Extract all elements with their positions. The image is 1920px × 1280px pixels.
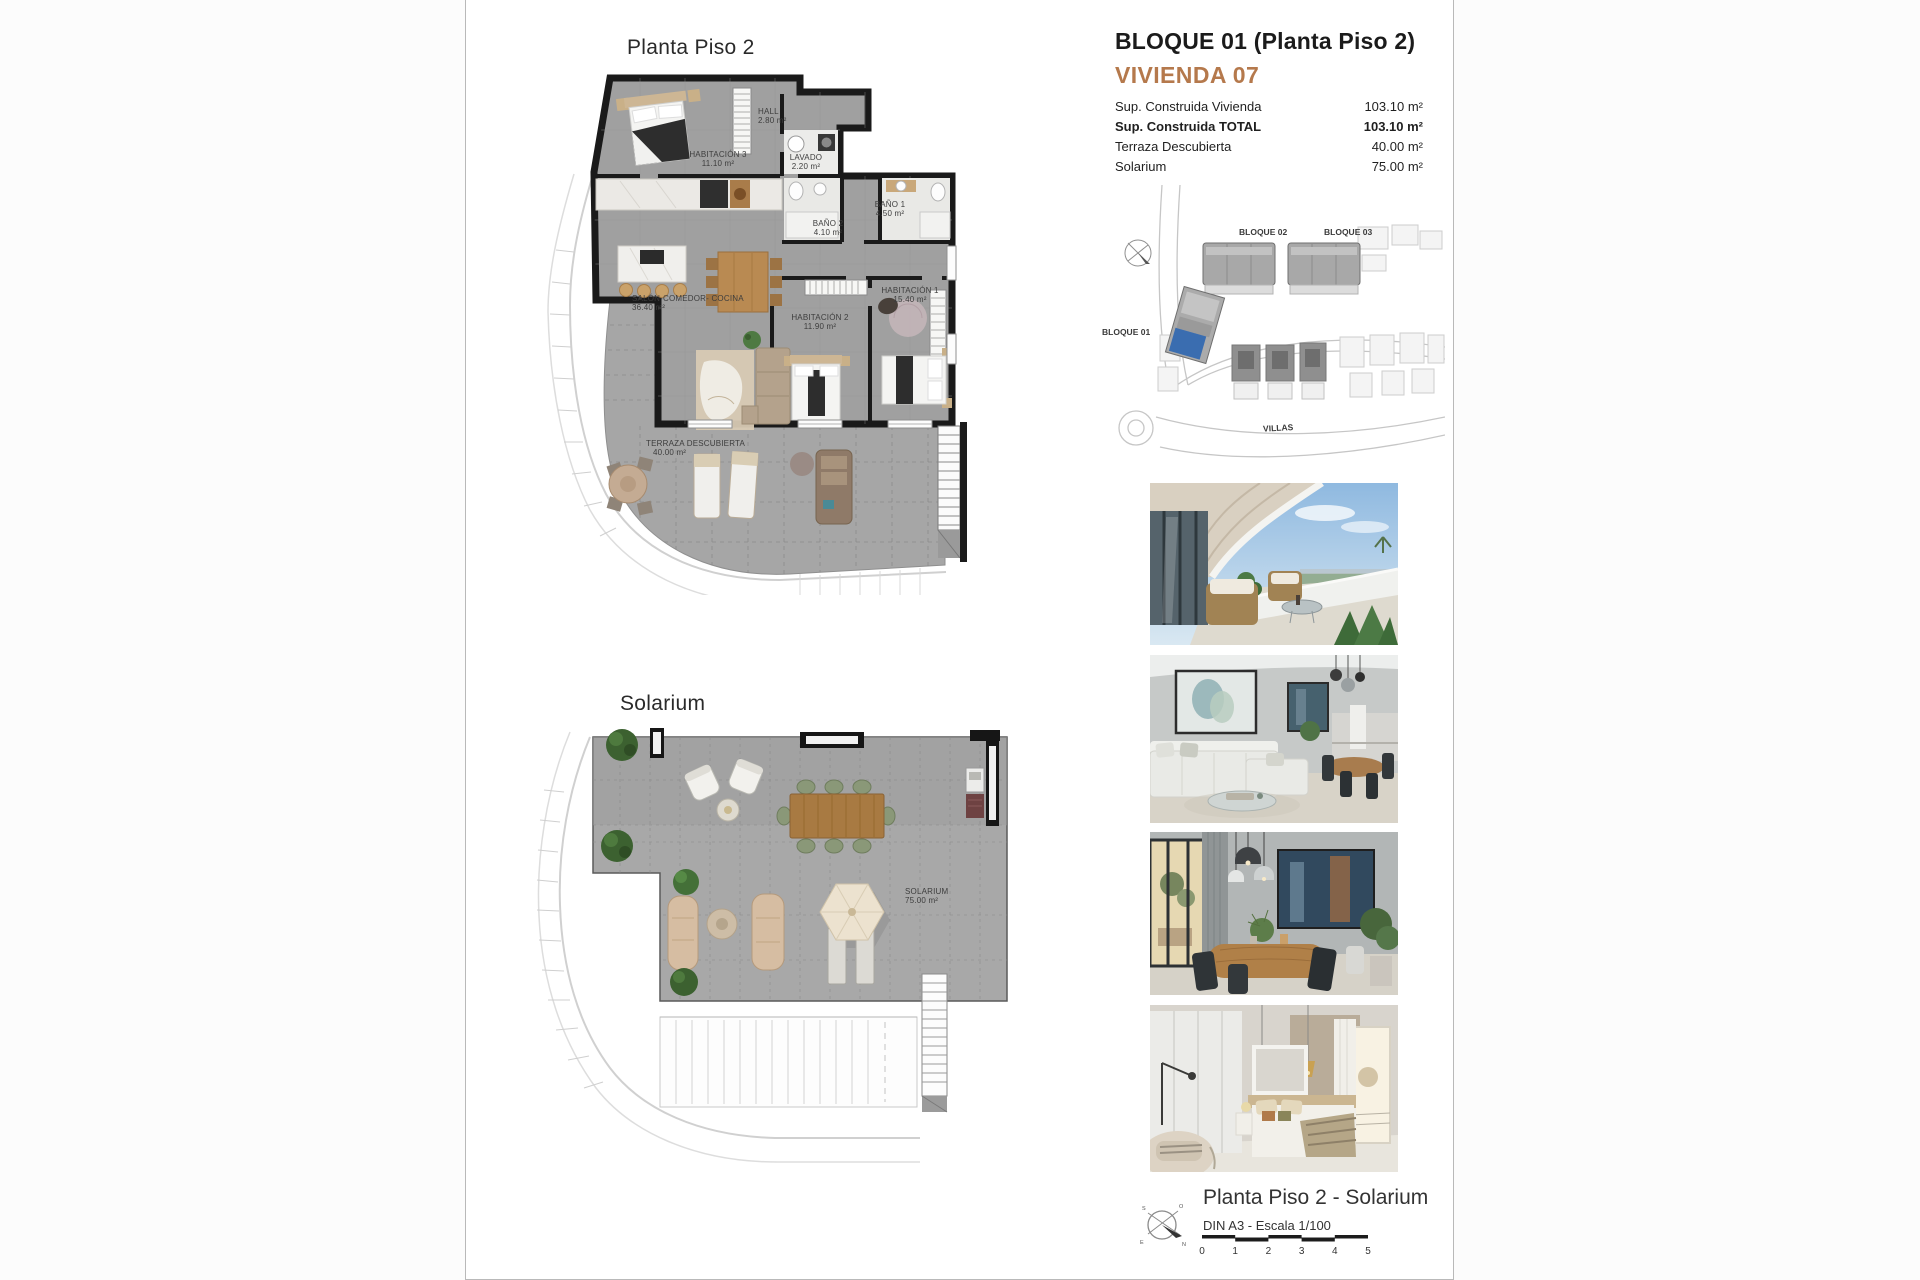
room-area: 2.20 m² [792,162,821,171]
area-row: Solarium 75.00 m² [1115,157,1423,177]
site-plan: BLOQUE 02 BLOQUE 03 BLOQUE 01 VILLAS [1100,185,1445,475]
area-row: Sup. Construida TOTAL 103.10 m² [1115,117,1423,137]
site-label-bloque01: BLOQUE 01 [1102,327,1150,337]
block-title: BLOQUE 01 (Planta Piso 2) [1115,28,1415,55]
photo-living-room [1150,655,1398,823]
photo-bedroom [1150,1005,1398,1172]
area-label: Sup. Construida Vivienda [1115,97,1261,117]
compass-letter-o: O [1179,1204,1184,1210]
scale-tick: 0 [1199,1246,1205,1257]
compass-letter-s: S [1142,1206,1146,1212]
area-value: 40.00 m² [1372,137,1423,157]
area-table: Sup. Construida Vivienda 103.10 m² Sup. … [1115,97,1423,177]
bed [1248,1095,1356,1157]
lower-roof-tiles [660,1017,917,1107]
site-compass-icon [1125,240,1151,266]
footer-scale-text: DIN A3 - Escala 1/100 [1203,1218,1331,1233]
room-area: 11.90 m² [804,322,837,331]
room-area: 15.40 m² [893,295,926,304]
unit-title: VIVIENDA 07 [1115,62,1259,89]
photo-terrace [1150,483,1398,645]
site-label-bloque03: BLOQUE 03 [1324,227,1372,237]
room-label: SOLARIUM [905,887,949,896]
site-bloque02-building [1203,243,1275,294]
scale-tick: 4 [1332,1246,1338,1257]
compass-letter-e: E [1140,1240,1144,1246]
brochure-sheet: { "page": { "plan1_title": "Planta Piso … [0,0,1920,1280]
stairs-icon [938,422,967,562]
room-area: 75.00 m² [905,896,938,905]
photo-dining-room [1150,832,1398,995]
scale-tick: 2 [1266,1246,1272,1257]
room-label: HABITACIÓN 1 [881,286,939,295]
site-bloque01-building [1165,287,1224,364]
site-villas [1232,343,1326,399]
room-label: HABITACIÓN 2 [791,313,849,322]
site-label-villas: VILLAS [1263,422,1294,434]
dining-table-icon [706,252,782,312]
area-row: Sup. Construida Vivienda 103.10 m² [1115,97,1423,117]
area-label: Terraza Descubierta [1115,137,1231,157]
footer-title: Planta Piso 2 - Solarium [1203,1186,1428,1210]
floor-plan-drawing: HALL 2.80 m² HABITACIÓN 3 11.10 m² LAVAD… [490,50,1015,595]
room-label: LAVADO [790,153,822,162]
north-compass-icon: S O E N [1134,1196,1192,1254]
room-label: BAÑO 2 [813,219,844,228]
room-area: 36.40 m² [632,303,665,312]
scale-tick: 5 [1365,1246,1371,1257]
room-area: 11.10 m² [702,159,735,168]
bed-icon-hab2 [784,355,850,420]
compass-letter-n: N [1182,1242,1186,1248]
room-area: 2.80 m² [758,116,787,125]
solarium-stairs-icon [922,974,947,1112]
wall-mirror [1254,1047,1306,1093]
site-bloque03-building [1288,243,1360,294]
scale-tick: 3 [1299,1246,1305,1257]
area-label: Sup. Construida TOTAL [1115,117,1261,137]
room-label: TERRAZA DESCUBIERTA [646,439,746,448]
room-label: BAÑO 1 [875,200,906,209]
area-value: 103.10 m² [1364,117,1423,137]
room-area: 4.10 m² [814,228,843,237]
scale-tick: 1 [1232,1246,1238,1257]
area-value: 103.10 m² [1364,97,1423,117]
scale-bar: 0 1 2 3 4 5 [1198,1232,1378,1262]
room-label: SALÓN-COMEDOR- COCINA [632,294,744,303]
area-label: Solarium [1115,157,1166,177]
room-area: 40.00 m² [653,448,686,457]
room-label: HALL [758,107,779,116]
room-area: 4.50 m² [876,209,905,218]
area-value: 75.00 m² [1372,157,1423,177]
room-label: HABITACIÓN 3 [689,150,747,159]
solarium-plan-drawing: SOLARIUM 75.00 m² [490,690,1015,1190]
area-row: Terraza Descubierta 40.00 m² [1115,137,1423,157]
site-label-bloque02: BLOQUE 02 [1239,227,1287,237]
